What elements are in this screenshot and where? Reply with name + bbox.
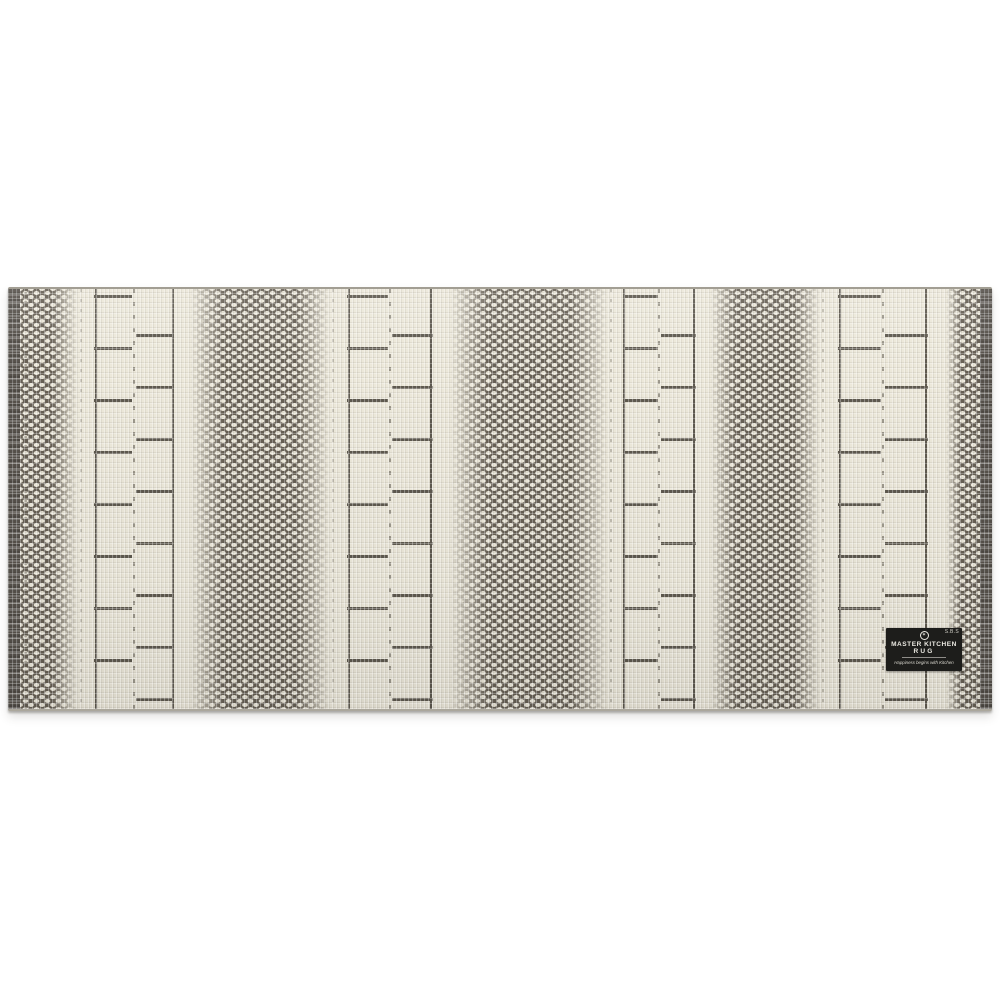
- kitchen-rug: S.B.S ✶ MASTER KITCHEN RUG Happiness beg…: [8, 287, 992, 711]
- rug-stripe-ladder: [330, 289, 450, 709]
- brand-logo-glyph: ✶: [922, 633, 926, 639]
- brand-name: MASTER KITCHEN: [886, 641, 962, 648]
- rug-stripe-honeycomb: [20, 289, 78, 709]
- rug-stripe-honeycomb: [710, 289, 820, 709]
- rug-stripe-honeycomb: [190, 289, 330, 709]
- brand-name-rug: RUG: [886, 648, 962, 655]
- rug-stripe-ladder: [608, 289, 710, 709]
- label-corner-text: S.B.S: [945, 630, 959, 636]
- brand-label: S.B.S ✶ MASTER KITCHEN RUG Happiness beg…: [886, 628, 962, 671]
- rug-stripe-edge: [980, 289, 992, 709]
- rug-pattern-stripes: [8, 289, 992, 709]
- rug-stripe-ladder: [78, 289, 190, 709]
- label-divider: [902, 657, 946, 658]
- rug-stripe-edge: [8, 289, 20, 709]
- product-photo: S.B.S ✶ MASTER KITCHEN RUG Happiness beg…: [0, 0, 1000, 1000]
- brand-tagline: Happiness begins with Kitchen: [888, 660, 960, 665]
- rug-stripe-honeycomb: [450, 289, 608, 709]
- brand-logo-icon: ✶: [920, 631, 929, 640]
